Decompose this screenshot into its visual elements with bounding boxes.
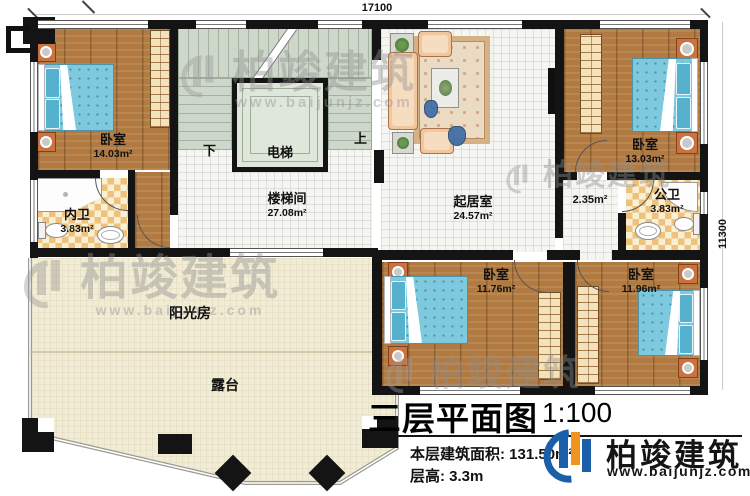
armchair <box>418 31 452 57</box>
wall-s1-s2 <box>563 262 575 386</box>
window-right-ne <box>700 62 708 144</box>
window-top-ne <box>600 20 690 29</box>
bed <box>632 58 698 132</box>
dimension-line-right <box>722 22 723 390</box>
wall-living-bottom-b <box>547 250 580 260</box>
headboard <box>691 58 698 132</box>
window-bottom-s2 <box>595 386 690 395</box>
wall-mid-left-b <box>323 248 378 257</box>
room-label-bedroom-nw: 卧室14.03m² <box>63 133 163 160</box>
tv <box>548 68 555 114</box>
room-label-living: 起居室24.57m² <box>423 195 523 222</box>
side-table-plant <box>392 132 414 154</box>
sink <box>635 222 661 240</box>
window-top-stair-l <box>196 20 246 29</box>
wall-nw-bottom <box>30 170 100 178</box>
plan-scale: 1:100 <box>542 397 612 429</box>
wardrobe <box>580 34 602 134</box>
nightstand <box>676 38 698 60</box>
plan-title: 三层平面图 <box>368 392 538 440</box>
room-label-public-bath: 公卫3.83m² <box>622 188 712 215</box>
wall-stair-living-top <box>372 20 381 60</box>
bed <box>38 64 114 131</box>
floor-plan-canvas: 17100 11300 <box>0 0 750 496</box>
wall-ne-bottom-a <box>563 172 577 180</box>
room-label-inner-bath: 内卫3.83m² <box>32 208 122 235</box>
terrace-sunroom-area <box>20 252 405 492</box>
room-label-sunroom: 阳光房 <box>140 305 240 321</box>
wardrobe <box>577 286 599 384</box>
window-top-nw <box>38 20 148 29</box>
toilet-tank <box>693 213 700 235</box>
wall-living-bottom-a <box>372 250 513 260</box>
wall-living-ne <box>555 20 564 172</box>
room-label-bedroom-s1: 卧室11.76m² <box>446 268 546 295</box>
dimension-tick <box>700 8 711 19</box>
dimension-top: 17100 <box>345 2 409 14</box>
sheet-fold <box>60 65 76 130</box>
person-figure <box>448 126 466 146</box>
pillow <box>676 97 691 129</box>
toilet-bowl <box>674 217 694 231</box>
nightstand <box>36 42 56 62</box>
window-top-stair-r <box>318 20 362 29</box>
sheet-fold <box>406 277 422 343</box>
pillow <box>679 294 693 323</box>
brand-logo-icon <box>542 427 598 485</box>
sliding-door-sunroom <box>230 248 323 257</box>
window-left-nw <box>30 62 38 132</box>
bed <box>638 290 700 356</box>
pillow <box>391 312 406 341</box>
pillow <box>45 68 60 98</box>
wall-innerbath-nook <box>128 170 135 248</box>
wall-living-bottom-c <box>612 250 708 260</box>
dimension-line-top <box>32 14 706 15</box>
pillow <box>679 325 693 354</box>
wall-terrace-right <box>372 250 382 386</box>
room-label-terrace: 露台 <box>175 377 275 393</box>
sheet-fold <box>660 59 676 131</box>
room-label-stairwell: 楼梯间27.08m² <box>237 192 337 219</box>
nightstand <box>388 346 408 366</box>
window-top-living <box>428 20 522 29</box>
sofa <box>388 52 418 130</box>
stair-up-label: 上 <box>354 128 367 147</box>
pillow <box>676 63 691 95</box>
corner-tick <box>82 0 95 13</box>
room-label-bedroom-s2: 卧室11.96m² <box>591 268 691 295</box>
pillow <box>391 281 406 310</box>
stat-floor-height: 层高: 3.3m <box>410 465 483 486</box>
person-figure <box>424 100 438 118</box>
headboard <box>693 290 700 356</box>
wall-mid-left-a <box>30 248 230 257</box>
room-label-vestibule: 2.35m² <box>559 194 621 207</box>
stair-living-divider <box>371 60 372 150</box>
vestibule-floor <box>563 180 618 260</box>
sheet-fold <box>665 291 680 355</box>
wall-ne-bottom-b <box>607 172 708 180</box>
wall-vestibule-bath <box>618 213 626 260</box>
brand-website: www.baijunjz.com <box>607 463 750 479</box>
pillow <box>45 99 60 129</box>
headboard <box>38 64 45 131</box>
dimension-right: 11300 <box>717 211 729 257</box>
nightstand <box>678 358 698 378</box>
wall-stub-hall <box>374 150 384 183</box>
stair-down-label: 下 <box>203 140 216 159</box>
room-label-bedroom-ne: 卧室13.03m² <box>595 138 695 165</box>
wall-nw-stair <box>170 20 178 215</box>
elevator-shaft: 电梯 <box>232 78 328 172</box>
wardrobe <box>150 30 170 128</box>
headboard <box>384 276 391 344</box>
wardrobe <box>538 292 561 380</box>
elevator-label: 电梯 <box>237 146 323 161</box>
nightstand <box>36 132 56 152</box>
window-right-s2 <box>700 288 708 360</box>
